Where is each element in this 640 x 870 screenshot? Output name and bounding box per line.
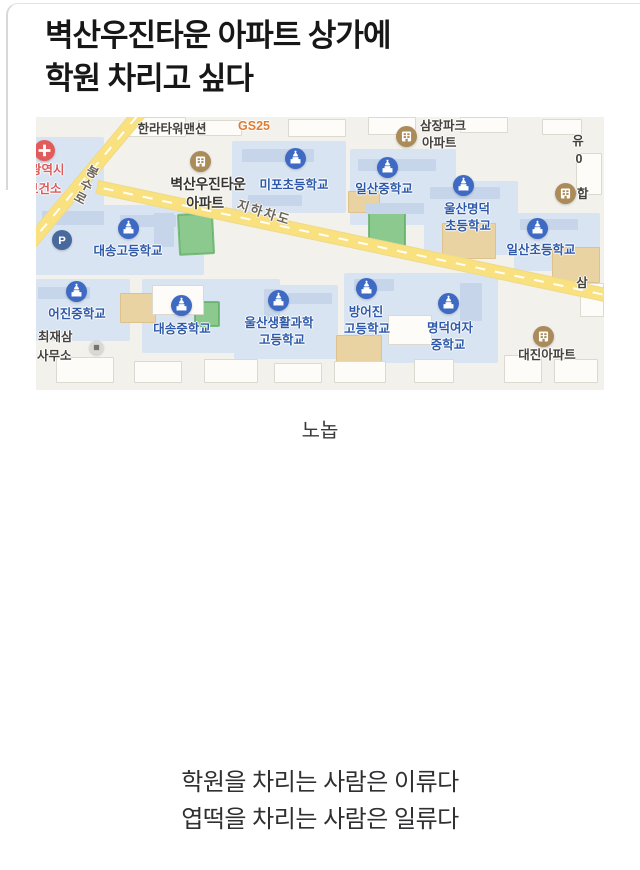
yu-partial-label: 유 xyxy=(572,133,584,149)
choi-jaesam-office-office-icon xyxy=(89,340,104,355)
punchline-line1: 학원을 차리는 사람은 이류다 xyxy=(181,769,458,796)
samjang-park-apt-label: 아파트 xyxy=(422,135,457,151)
byeoksan-woojin-town-apt-label: 아파트 xyxy=(186,195,224,211)
byeoksan-woojin-town-apt-label: 벽산우진타운 xyxy=(170,176,245,192)
ilsan-elementary-label: 일산초등학교 xyxy=(506,242,575,258)
ilsan-middle-school-icon xyxy=(377,157,398,178)
hap-apt-partial-apartment-icon xyxy=(555,183,576,204)
ilsan-elementary-school-icon xyxy=(527,218,548,239)
health-center-label: 보건소 xyxy=(36,181,62,197)
daesong-high-label: 대송고등학교 xyxy=(93,243,162,259)
daesong-high-school-icon xyxy=(118,218,139,239)
eojin-middle-label: 어진중학교 xyxy=(48,306,106,322)
punchline-text: 학원을 차리는 사람은 이류다엽떡을 차리는 사람은 일류다 xyxy=(0,764,640,838)
punchline-line2: 엽떡을 차리는 사람은 일류다 xyxy=(181,806,458,833)
myeongdeok-girls-middle-label: 중학교 xyxy=(431,337,466,353)
samjang-park-apt-label: 삼장파크 xyxy=(420,118,466,134)
post-title-line2: 학원 차리고 싶다 xyxy=(45,61,253,96)
choi-jaesam-office-label: 최재삼 xyxy=(38,329,73,345)
jiha-chado-label: 지하차도 xyxy=(235,197,293,229)
health-center-health-icon xyxy=(36,140,55,161)
ulsan-life-science-high-school-icon xyxy=(268,290,289,311)
ulsan-life-science-high-label: 울산생활과학 xyxy=(244,315,313,331)
ulsan-myeongdeok-elementary-label: 초등학교 xyxy=(445,218,491,234)
map-image[interactable]: 한라타워맨션GS25삼장파크아파트유0광역시보건소벽산우진타운아파트미포초등학교… xyxy=(36,117,604,390)
samjang-park-apt-apartment-icon xyxy=(396,126,417,147)
post-title-line1: 벽산우진타운 아파트 상가에 xyxy=(45,18,390,53)
bangeojin-high-label: 방어진 xyxy=(349,304,384,320)
bangeojin-high-school-icon xyxy=(356,278,377,299)
mipo-elementary-label: 미포초등학교 xyxy=(259,177,328,193)
byeoksan-woojin-town-apt-apartment-icon xyxy=(190,151,211,172)
ilsan-middle-label: 일산중학교 xyxy=(355,181,413,197)
eojin-middle-school-icon xyxy=(66,281,87,302)
parking-parking-icon: P xyxy=(52,230,72,250)
myeongdeok-girls-middle-label: 명덕여자 xyxy=(427,320,473,336)
ulsan-myeongdeok-elementary-label: 울산명덕 xyxy=(444,201,490,217)
sam-partial-label: 삼 xyxy=(576,275,588,291)
mipo-elementary-school-icon xyxy=(285,148,306,169)
health-center-label: 광역시 xyxy=(36,162,65,178)
caption-nonop: 노놉 xyxy=(0,414,640,443)
ulsan-myeongdeok-elementary-school-icon xyxy=(453,175,474,196)
hanla-tower-mansion-label: 한라타워맨션 xyxy=(137,121,206,137)
yu-partial-label: 0 xyxy=(576,151,583,167)
ulsan-life-science-high-label: 고등학교 xyxy=(259,332,305,348)
myeongdeok-girls-middle-school-icon xyxy=(438,293,459,314)
daejin-apt-label: 대진아파트 xyxy=(518,347,576,363)
hap-apt-partial-label: 합 xyxy=(577,186,589,202)
svg-text:P: P xyxy=(58,235,66,247)
daesong-middle-label: 대송중학교 xyxy=(153,321,211,337)
daejin-apt-apartment-icon xyxy=(533,326,554,347)
bangeojin-high-label: 고등학교 xyxy=(344,321,390,337)
gs25-label: GS25 xyxy=(238,118,270,134)
map-poi-layer: 한라타워맨션GS25삼장파크아파트유0광역시보건소벽산우진타운아파트미포초등학교… xyxy=(36,117,604,390)
choi-jaesam-office-label: 사무소 xyxy=(37,348,72,364)
post-title: 벽산우진타운 아파트 상가에학원 차리고 싶다 xyxy=(45,14,605,100)
daesong-middle-school-icon xyxy=(171,295,192,316)
